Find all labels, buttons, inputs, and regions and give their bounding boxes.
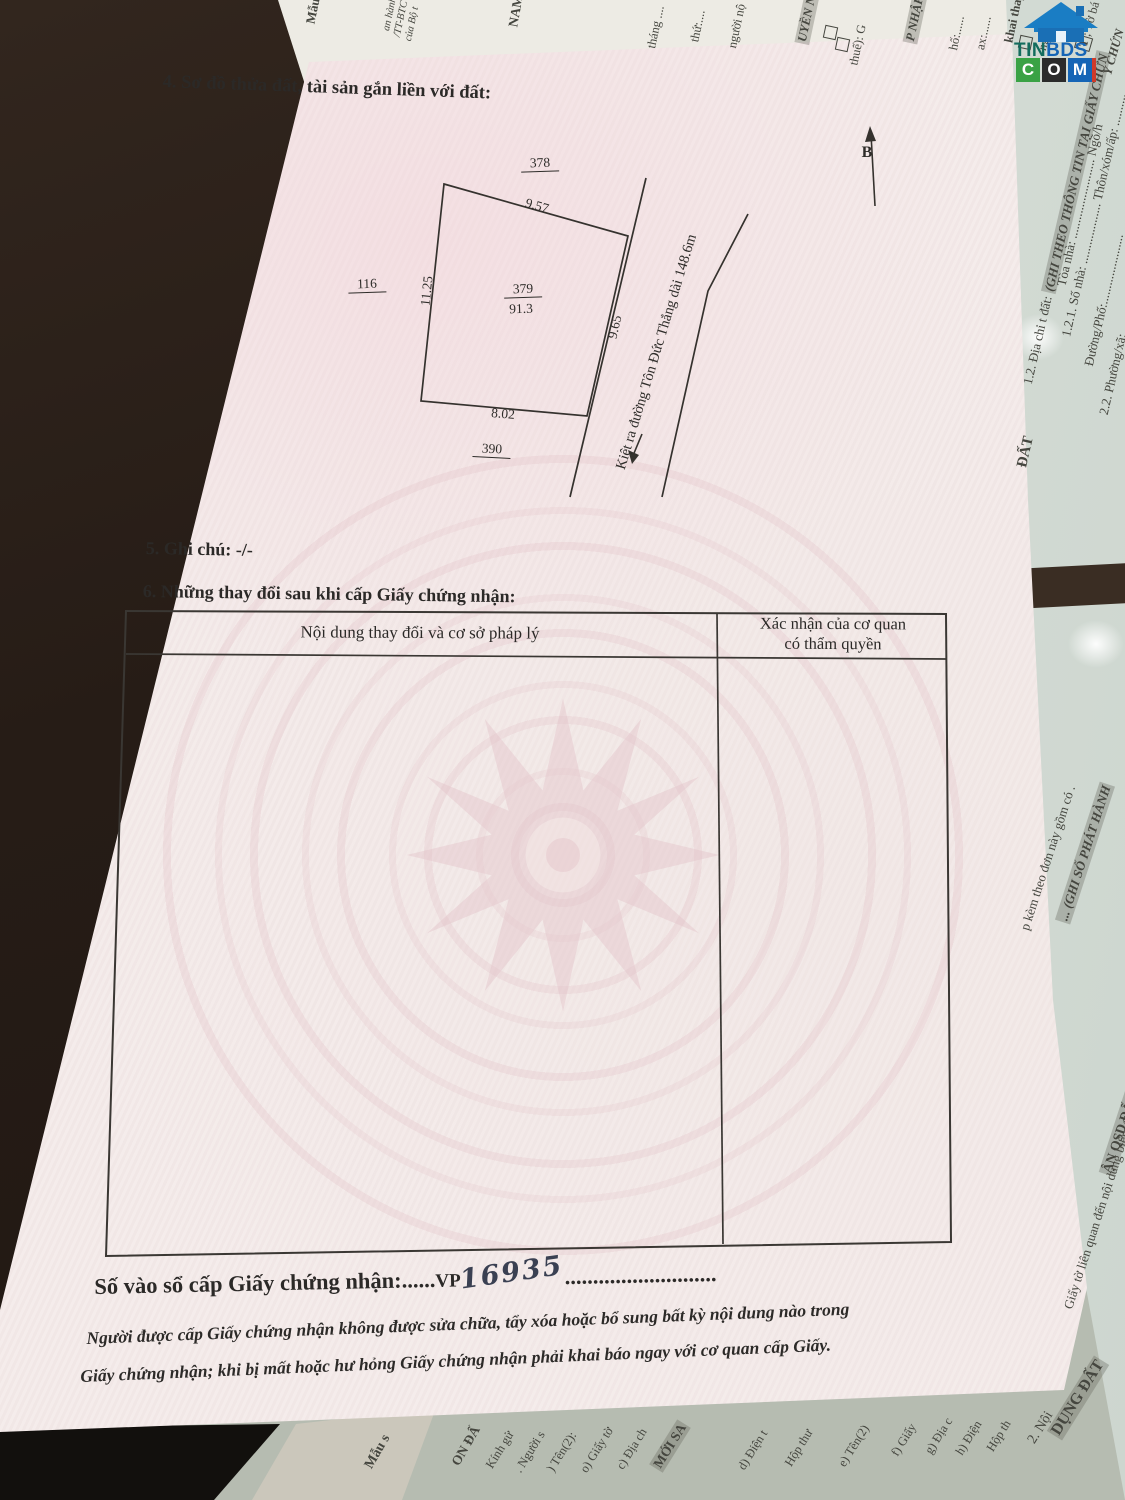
parcel-number-116: 116: [348, 275, 386, 292]
serial-prefix: VP: [435, 1270, 461, 1292]
parcel-number-378: 378: [521, 154, 560, 171]
checkbox: [835, 37, 850, 52]
parcel-area-379: 91.3: [509, 301, 533, 318]
serial-dots-right: ...........................: [564, 1261, 716, 1289]
north-label: B: [862, 144, 873, 162]
serial-dots-left: ......: [401, 1267, 435, 1293]
section5-title: 5. Ghi chú: -/-: [146, 538, 253, 561]
table-col2-header-line2: có thẩm quyền: [784, 634, 881, 655]
checkbox: [823, 25, 838, 40]
table-col1-header: Nội dung thay đổi và cơ sở pháp lý: [300, 622, 539, 643]
table-col2-header-line1: Xác nhận của cơ quan: [760, 614, 906, 635]
parcel-number-390: 390: [472, 440, 511, 458]
bronze-drum-watermark: [158, 450, 968, 1260]
house-icon: [1024, 2, 1098, 42]
photo-of-land-certificate: 4. Sơ đồ thửa đất, tài sản gắn liền với …: [0, 0, 1125, 1500]
glare-spot: [1068, 620, 1124, 668]
edge-length-left: 11.25: [417, 275, 436, 306]
edge-length-bottom: 8.02: [491, 405, 516, 423]
logo-com-boxes: C O M: [1016, 58, 1098, 82]
drum-star: [393, 685, 733, 1025]
serial-label: Số vào sổ cấp Giấy chứng nhận:: [94, 1268, 402, 1299]
parcel-number-379: 379: [504, 280, 543, 297]
tinbds-logo: TINBDS C O M: [1012, 2, 1114, 88]
